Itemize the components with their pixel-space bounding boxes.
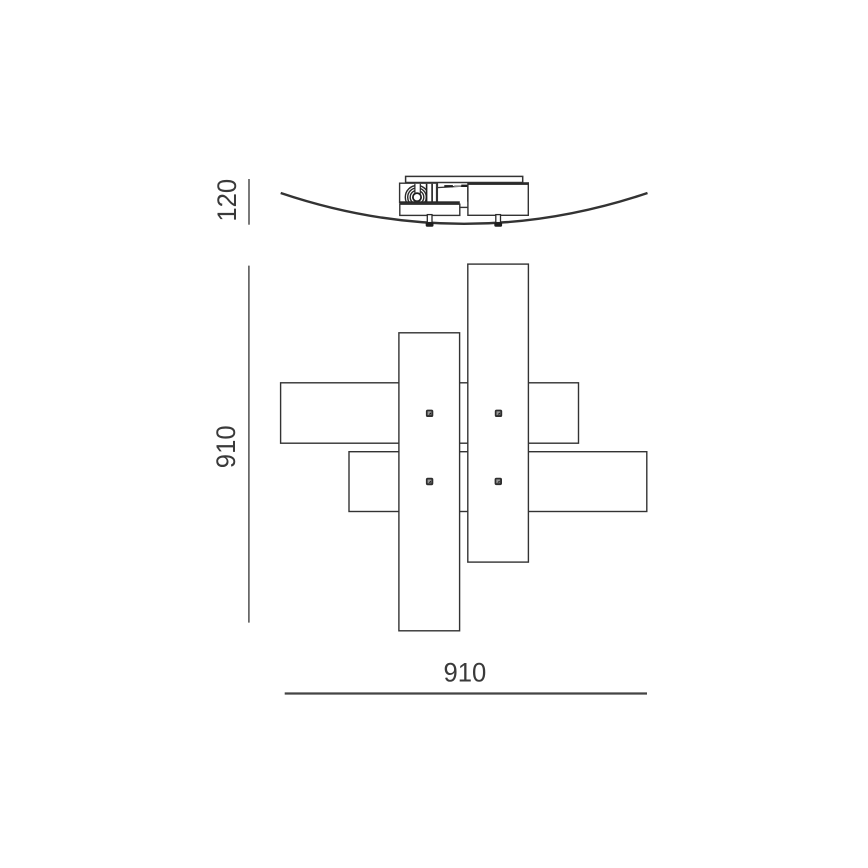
svg-text:120: 120 [211, 179, 242, 222]
svg-text:910: 910 [211, 425, 242, 468]
svg-text:910: 910 [444, 657, 487, 688]
